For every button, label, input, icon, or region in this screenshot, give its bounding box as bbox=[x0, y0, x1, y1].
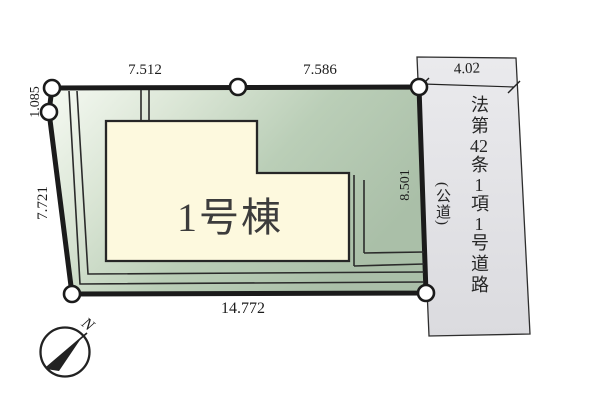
dim-label-right-side: 8.501 bbox=[396, 160, 416, 210]
approach-line bbox=[364, 252, 424, 253]
dim-label-left-lower: 7.721 bbox=[32, 177, 54, 229]
north-arrow-icon bbox=[41, 328, 90, 377]
dim-label-bottom: 14.772 bbox=[201, 300, 285, 318]
road-text-segment: 42 bbox=[469, 137, 489, 155]
road-text-segment: 条 bbox=[469, 155, 489, 176]
road-type-label: (公道) bbox=[432, 182, 453, 282]
road-text-segment: 法第 bbox=[469, 95, 489, 137]
road-text-segment: 1 bbox=[469, 215, 489, 233]
building-label: 1号棟 bbox=[128, 194, 332, 242]
dim-label-road-width: 4.02 bbox=[441, 60, 494, 79]
road-designation-label: 法第42条1項1号道路 bbox=[466, 95, 492, 343]
survey-point bbox=[411, 79, 427, 95]
survey-point bbox=[64, 286, 80, 302]
road-text-segment: 号道路 bbox=[469, 233, 489, 296]
dim-label-left-upper: 1.085 bbox=[25, 77, 47, 127]
survey-point bbox=[418, 285, 434, 301]
road-text-segment: 項 bbox=[469, 194, 489, 215]
dim-label-top-right: 7.586 bbox=[283, 62, 357, 79]
road-text-segment: 1 bbox=[469, 176, 489, 194]
site-plan-diagram: 7.512 7.586 4.02 1.085 7.721 8.501 14.77… bbox=[0, 0, 600, 412]
survey-point bbox=[230, 79, 246, 95]
dim-label-top-left: 7.512 bbox=[108, 62, 182, 79]
